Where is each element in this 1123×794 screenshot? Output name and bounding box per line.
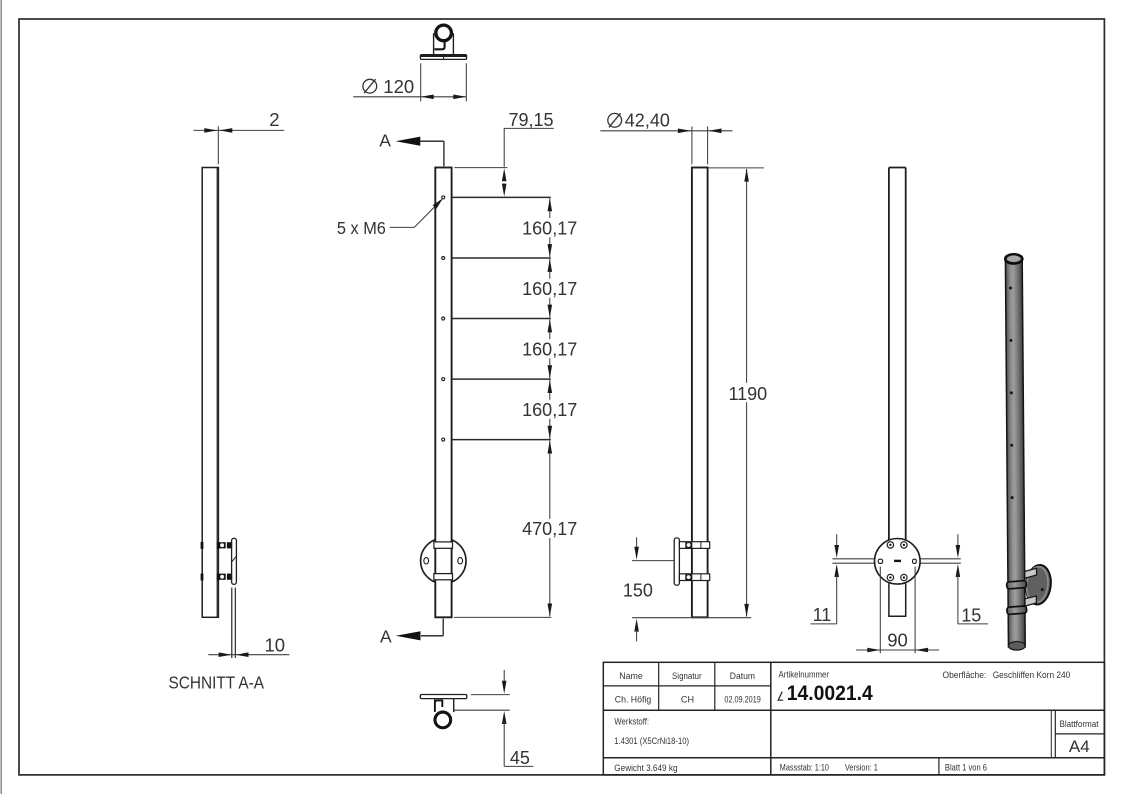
svg-text:470,17: 470,17 [522, 519, 577, 539]
svg-text:1.4301 (X5CrNi18-10): 1.4301 (X5CrNi18-10) [614, 736, 689, 747]
svg-text:Artikelnummer: Artikelnummer [779, 670, 830, 681]
svg-text:10: 10 [265, 635, 286, 656]
svg-text:160,17: 160,17 [522, 279, 577, 299]
svg-text:Oberfläche:: Oberfläche: [943, 670, 987, 681]
svg-text:45: 45 [510, 748, 530, 768]
svg-text:Ch. Höfig: Ch. Höfig [615, 695, 651, 706]
svg-text:150: 150 [623, 580, 653, 600]
svg-text:Version: 1: Version: 1 [845, 763, 878, 774]
svg-text:SCHNITT A-A: SCHNITT A-A [169, 673, 265, 693]
svg-text:5 x M6: 5 x M6 [337, 218, 386, 238]
svg-text:120: 120 [383, 76, 414, 97]
svg-text:A: A [379, 130, 391, 150]
svg-text:Signatur: Signatur [672, 671, 702, 682]
svg-text:160,17: 160,17 [522, 218, 577, 238]
svg-text:Gewicht 3.649 kg: Gewicht 3.649 kg [614, 763, 677, 774]
svg-text:A4: A4 [1069, 737, 1090, 756]
svg-text:Blattformat: Blattformat [1060, 719, 1099, 730]
svg-text:11: 11 [813, 605, 832, 625]
svg-text:Werkstoff:: Werkstoff: [614, 717, 649, 728]
svg-text:Massstab: 1:10: Massstab: 1:10 [780, 763, 829, 774]
svg-text:160,17: 160,17 [522, 400, 577, 420]
svg-text:15: 15 [961, 605, 981, 625]
svg-text:79,15: 79,15 [509, 110, 554, 130]
svg-text:Blatt 1 von 6: Blatt 1 von 6 [945, 763, 987, 774]
svg-text:2: 2 [269, 109, 279, 130]
svg-text:Datum: Datum [730, 671, 755, 682]
svg-text:42,40: 42,40 [625, 110, 670, 130]
svg-text:14.0021.4: 14.0021.4 [787, 681, 873, 705]
svg-text:Geschliffen Korn 240: Geschliffen Korn 240 [993, 670, 1071, 681]
svg-text:Name: Name [619, 671, 643, 682]
svg-text:160,17: 160,17 [522, 339, 577, 359]
svg-text:A: A [380, 626, 392, 646]
svg-text:1190: 1190 [728, 384, 767, 404]
svg-text:CH: CH [681, 695, 694, 706]
svg-text:90: 90 [887, 630, 908, 651]
svg-text:02.09.2019: 02.09.2019 [724, 695, 760, 706]
